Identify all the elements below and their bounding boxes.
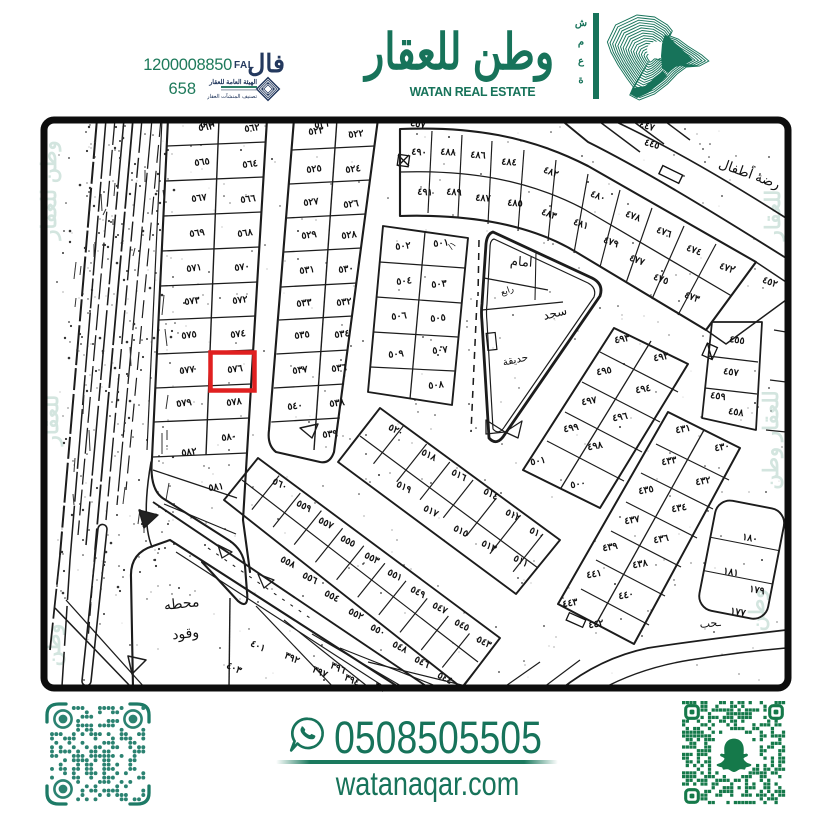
svg-text:٥٧٤: ٥٧٤ <box>230 328 247 341</box>
svg-text:٥٠١: ٥٠١ <box>530 455 547 469</box>
svg-text:٤٣٧: ٤٣٧ <box>624 514 642 528</box>
svg-text:٥٠٧: ٥٠٧ <box>432 344 449 357</box>
svg-text:٤٤٣: ٤٤٣ <box>562 597 580 611</box>
svg-text:٥٤٥: ٥٤٥ <box>452 617 471 634</box>
svg-text:٥٣٥: ٥٣٥ <box>294 329 311 342</box>
svg-text:٥٧٧: ٥٧٧ <box>179 364 197 377</box>
svg-text:٥٣٨: ٥٣٨ <box>329 397 347 410</box>
svg-text:٥٣٧: ٥٣٧ <box>292 364 310 377</box>
svg-text:١٨٠: ١٨٠ <box>741 532 758 546</box>
svg-text:٥٢٢: ٥٢٢ <box>348 128 366 141</box>
svg-text:محطه: محطه <box>163 593 200 613</box>
svg-text:٣٩٧: ٣٩٧ <box>310 664 329 681</box>
svg-text:للعقار وطن: للعقار وطن <box>760 390 784 489</box>
svg-text:٥٢٩: ٥٢٩ <box>301 229 319 242</box>
svg-text:٥٢٧: ٥٢٧ <box>303 196 321 209</box>
svg-text:٤٩٠: ٤٩٠ <box>411 146 427 158</box>
svg-text:١٧٧: ١٧٧ <box>729 606 747 620</box>
svg-text:٥٧٠: ٥٧٠ <box>234 261 251 274</box>
svg-text:٥٢٤: ٥٢٤ <box>345 163 362 176</box>
svg-text:٥٢٦: ٥٢٦ <box>343 198 361 211</box>
svg-text:٥٠٣: ٥٠٣ <box>431 278 448 291</box>
svg-text:٤٤٢: ٤٤٢ <box>588 618 606 632</box>
svg-text:٤٥٩: ٤٥٩ <box>710 390 728 403</box>
svg-text:٥٦٩: ٥٦٩ <box>189 227 207 240</box>
svg-text:٥٥٩: ٥٥٩ <box>294 498 314 515</box>
svg-text:٤٩١: ٤٩١ <box>417 186 433 198</box>
svg-text:٥٧٥: ٥٧٥ <box>181 329 198 342</box>
svg-text:٥٧٢: ٥٧٢ <box>232 294 250 307</box>
svg-text:٥٣٢: ٥٣٢ <box>336 296 354 309</box>
svg-text:٤٨٠: ٤٨٠ <box>589 189 607 205</box>
svg-text:٤٥٥: ٤٥٥ <box>729 334 746 347</box>
svg-text:٥٦٢: ٥٦٢ <box>244 122 262 135</box>
svg-text:٥٨١: ٥٨١ <box>208 481 225 494</box>
svg-text:٥٣٠: ٥٣٠ <box>338 263 355 276</box>
svg-text:٥٥٧: ٥٥٧ <box>316 515 336 532</box>
svg-text:٥١٩: ٥١٩ <box>394 479 414 496</box>
svg-text:٥٦٨: ٥٦٨ <box>237 227 255 240</box>
svg-text:٥٨٢: ٥٨٢ <box>181 446 199 459</box>
svg-text:٥٧٨: ٥٧٨ <box>226 396 244 409</box>
svg-text:٥٣٦: ٥٣٦ <box>331 362 349 375</box>
svg-text:٥٤٩: ٥٤٩ <box>408 584 428 601</box>
svg-text:٤٧٥: ٤٧٥ <box>652 272 670 288</box>
svg-text:٥٣١: ٥٣١ <box>299 264 316 277</box>
svg-text:٤٨٤: ٤٨٤ <box>501 156 517 168</box>
svg-text:٤٣٩: ٤٣٩ <box>602 541 620 555</box>
svg-text:٥٣٣: ٥٣٣ <box>296 297 314 310</box>
svg-text:رابع: رابع <box>499 283 515 298</box>
svg-text:٥٤٦: ٥٤٦ <box>412 654 432 671</box>
svg-text:٥٦٦: ٥٦٦ <box>240 193 258 206</box>
svg-text:٤٨٦: ٤٨٦ <box>470 149 487 161</box>
svg-text:٥٨٠: ٥٨٠ <box>221 431 238 444</box>
svg-text:٤٨١: ٤٨١ <box>572 217 590 233</box>
svg-text:٥٦٤: ٥٦٤ <box>242 158 259 171</box>
svg-text:٥٧٦: ٥٧٦ <box>227 363 245 376</box>
svg-text:امام: امام <box>509 253 533 271</box>
svg-text:٤٩٩: ٤٩٩ <box>563 422 581 436</box>
svg-text:٥١٥: ٥١٥ <box>451 523 470 540</box>
svg-text:٥٠٤: ٥٠٤ <box>396 275 413 288</box>
svg-text:٤٠٣: ٤٠٣ <box>224 660 243 677</box>
svg-text:٥٧١: ٥٧١ <box>186 262 203 275</box>
svg-text:٥٤٧: ٥٤٧ <box>430 600 450 617</box>
svg-text:٥٠٩: ٥٠٩ <box>388 348 405 361</box>
svg-text:٥٢٨: ٥٢٨ <box>341 229 359 242</box>
svg-text:٤٨٩: ٤٨٩ <box>446 186 463 198</box>
svg-text:٤٧٨: ٤٧٨ <box>624 209 643 225</box>
svg-text:٤٧٤: ٤٧٤ <box>685 243 703 259</box>
svg-text:٥٠٢: ٥٠٢ <box>395 240 412 253</box>
svg-text:٥١١: ٥١١ <box>511 553 530 570</box>
svg-text:٤٧٢: ٤٧٢ <box>718 261 737 277</box>
svg-text:٥٧٩: ٥٧٩ <box>176 397 194 410</box>
svg-text:سجد: سجد <box>542 303 569 322</box>
svg-text:٥١٣: ٥١٣ <box>479 538 499 555</box>
svg-text:٤٣٥: ٤٣٥ <box>638 484 655 498</box>
svg-text:٣٩٢: ٣٩٢ <box>282 650 301 667</box>
svg-text:٥٥٠: ٥٥٠ <box>368 622 387 639</box>
svg-text:٤٩٦: ٤٩٦ <box>612 411 630 425</box>
svg-text:٥٠٨: ٥٠٨ <box>428 379 445 392</box>
svg-text:٤٨٢: ٤٨٢ <box>542 165 561 181</box>
svg-text:٥٣٩: ٥٣٩ <box>322 428 340 441</box>
svg-text:٤٤١: ٤٤١ <box>586 568 603 582</box>
svg-text:٤٣٠: ٤٣٠ <box>714 441 731 455</box>
svg-text:٤٥٨: ٤٥٨ <box>728 406 746 419</box>
svg-text:٥٤٤: ٥٤٤ <box>435 670 454 687</box>
svg-text:٤٩٣: ٤٩٣ <box>614 333 632 347</box>
svg-text:٥٠٥: ٥٠٥ <box>430 312 447 325</box>
svg-text:٤٩٧: ٤٩٧ <box>581 395 599 409</box>
svg-text:٤٩٥: ٤٩٥ <box>596 365 613 379</box>
svg-text:٥١٦: ٥١٦ <box>449 467 469 484</box>
svg-text:٤٨٨: ٤٨٨ <box>440 146 457 158</box>
svg-text:٤٣٨: ٤٣٨ <box>632 558 650 572</box>
svg-text:١٨١: ١٨١ <box>722 566 739 580</box>
svg-text:٤٨٧: ٤٨٧ <box>475 192 492 204</box>
svg-text:٥١٤: ٥١٤ <box>481 486 500 503</box>
svg-text:وقود: وقود <box>171 624 200 644</box>
svg-text:٥٢٥: ٥٢٥ <box>306 163 323 176</box>
svg-text:٥٦٥: ٥٦٥ <box>194 156 211 169</box>
svg-text:٥٠٠: ٥٠٠ <box>570 478 587 492</box>
svg-text:٥٠٦: ٥٠٦ <box>391 310 408 323</box>
svg-text:٥٥١: ٥٥١ <box>385 567 404 584</box>
svg-text:٤٤٠: ٤٤٠ <box>618 589 635 603</box>
svg-text:٤٥٧: ٤٥٧ <box>723 366 741 379</box>
svg-text:٤٣٢: ٤٣٢ <box>695 475 713 489</box>
svg-text:٤٠١: ٤٠١ <box>248 638 267 655</box>
svg-text:٥٧٣: ٥٧٣ <box>184 295 202 308</box>
svg-text:ـحب: ـحب <box>699 617 722 631</box>
svg-text:٤٣٦: ٤٣٦ <box>653 533 671 547</box>
svg-text:٤٣٤: ٤٣٤ <box>671 502 688 516</box>
svg-text:٤٧٧: ٤٧٧ <box>628 253 647 269</box>
svg-text:٤٣٣: ٤٣٣ <box>661 455 679 469</box>
svg-text:٥٣٤: ٥٣٤ <box>334 328 351 341</box>
svg-text:٤٧٣: ٤٧٣ <box>683 290 702 306</box>
svg-text:٤٩٢: ٤٩٢ <box>653 351 671 365</box>
svg-text:٤٣١: ٤٣١ <box>675 423 692 437</box>
svg-text:رضة أطفال: رضة أطفال <box>716 153 783 193</box>
svg-text:٥١٧: ٥١٧ <box>421 503 441 520</box>
svg-text:٥٤٨: ٥٤٨ <box>390 639 410 656</box>
svg-text:٥٥٥: ٥٥٥ <box>338 533 357 550</box>
svg-text:٤٩٨: ٤٩٨ <box>587 440 605 454</box>
svg-text:٤٧٦: ٤٧٦ <box>655 225 674 241</box>
svg-text:٥٥٣: ٥٥٣ <box>362 550 382 567</box>
svg-text:٤٨٣: ٤٨٣ <box>540 207 559 223</box>
svg-text:٥٦٧: ٥٦٧ <box>191 192 209 205</box>
svg-text:حديقة: حديقة <box>501 352 529 369</box>
svg-text:٥٤٠: ٥٤٠ <box>287 400 304 413</box>
svg-text:٤٩٤: ٤٩٤ <box>635 383 652 397</box>
svg-text:٤٨٥: ٤٨٥ <box>507 197 523 209</box>
